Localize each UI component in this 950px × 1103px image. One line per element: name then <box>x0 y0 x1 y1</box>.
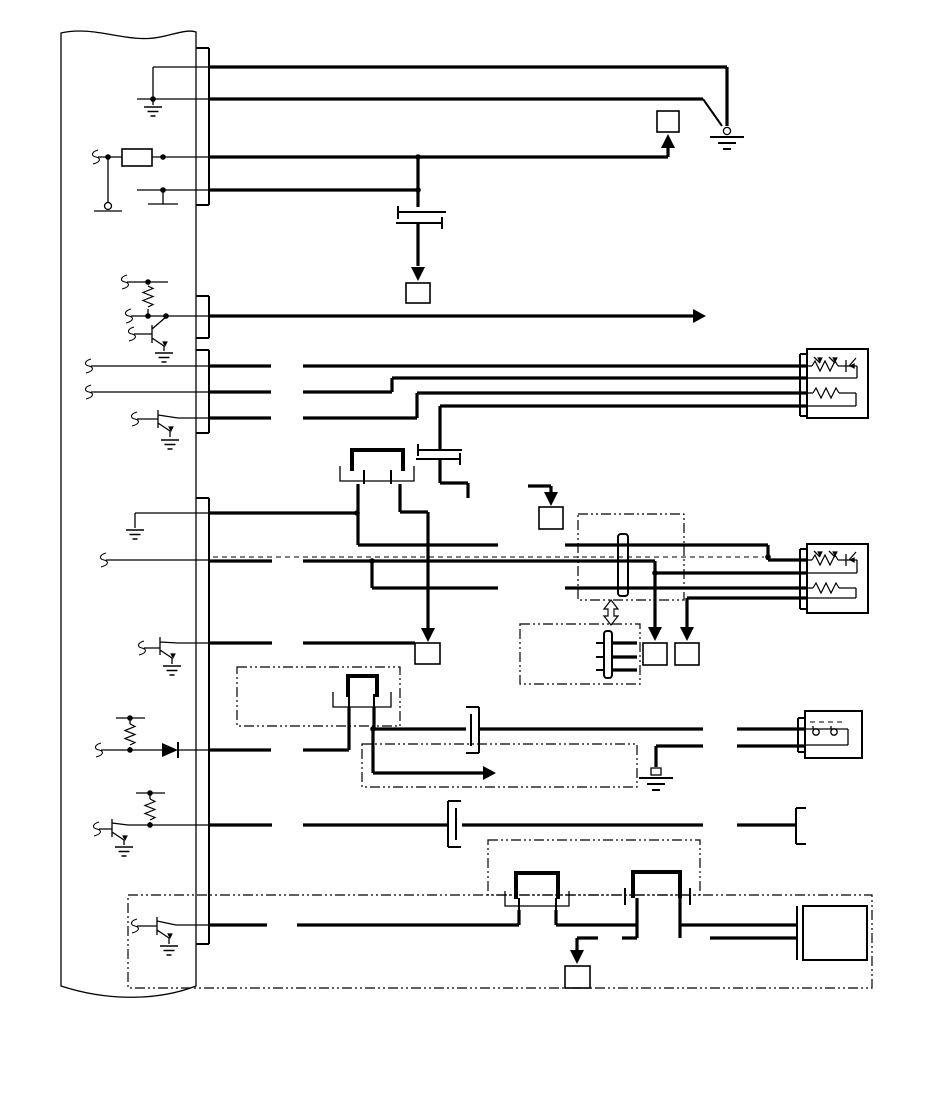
double-arrow-icon <box>604 600 618 625</box>
harness-boundary-box <box>362 744 637 787</box>
transistor-icon <box>131 917 209 955</box>
arrow-down-icon <box>570 950 584 964</box>
top-section <box>209 67 744 303</box>
harness-boundary-box <box>488 840 700 895</box>
open-terminal-icon <box>796 808 806 844</box>
harness-boundary-box <box>128 895 872 988</box>
lower-middle-section <box>209 667 805 790</box>
sensor-mid-right <box>800 544 868 613</box>
resistor-icon <box>143 286 153 307</box>
inline-plug-connector <box>505 873 569 910</box>
inline-connector-icon <box>466 707 479 753</box>
module-internal-group6 <box>131 917 209 955</box>
sensor-top-right <box>800 349 868 418</box>
ground-icon <box>126 530 144 539</box>
reference-box <box>657 111 679 132</box>
control-module <box>61 31 196 997</box>
module-internal-group3 <box>85 359 209 449</box>
reference-box <box>643 643 667 665</box>
arrow-up-icon <box>661 134 675 148</box>
contact-icon <box>813 729 819 735</box>
wiring-diagram <box>0 0 950 1103</box>
module-internal-group4 <box>100 513 209 675</box>
ground-icon <box>639 768 673 790</box>
ground-icon <box>710 127 744 149</box>
inline-plug-connector <box>340 450 414 484</box>
contact-switch-right <box>798 711 862 758</box>
connector-segment <box>196 48 209 205</box>
reference-box <box>565 966 590 988</box>
middle-section <box>209 450 807 684</box>
transistor-icon <box>128 317 173 362</box>
arrow-right-icon <box>483 766 496 780</box>
ground-icon <box>144 107 162 116</box>
actuator-bottom-right <box>797 906 867 960</box>
transistor-icon <box>131 410 209 449</box>
terminal-circle-icon <box>105 203 112 210</box>
resistor-icon <box>125 724 135 745</box>
bulkhead-connector-icon <box>604 631 612 678</box>
arrow-down-icon <box>648 627 662 641</box>
inline-plug-connector <box>333 676 391 709</box>
module-outline <box>61 31 196 997</box>
inline-connector-icon <box>448 801 461 847</box>
module-connector-bar <box>196 48 209 944</box>
arrow-down-icon <box>421 628 435 642</box>
transistor-icon <box>138 637 209 675</box>
arrow-right-icon <box>693 309 706 323</box>
bottom-section <box>128 840 872 988</box>
reference-box <box>539 507 563 529</box>
reference-box <box>675 643 699 665</box>
wire-316 <box>209 309 706 323</box>
contact-icon <box>831 729 837 735</box>
module-internal-group5 <box>93 715 209 856</box>
reference-box <box>406 283 430 303</box>
arrow-down-icon <box>411 267 425 281</box>
connector-segment <box>196 498 209 944</box>
module-internal-top-group <box>92 67 209 211</box>
harness-boundary-box <box>520 624 640 684</box>
harness-group3 <box>209 366 807 498</box>
inline-connector-icon <box>396 206 446 229</box>
arrow-down-icon <box>680 627 694 641</box>
schematic-canvas <box>0 0 950 1103</box>
connector-segment <box>196 296 209 338</box>
diode-icon <box>162 742 178 758</box>
reference-box <box>415 643 440 664</box>
resistor-box-icon <box>122 149 152 166</box>
arrow-down-icon <box>544 492 558 506</box>
resistor-icon <box>145 799 155 820</box>
